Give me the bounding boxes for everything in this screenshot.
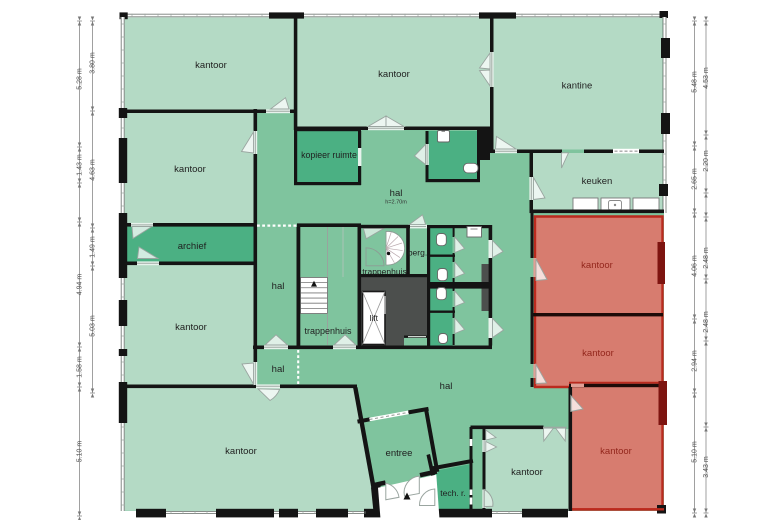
svg-text:kantoor: kantoor (225, 446, 257, 457)
svg-text:hal: hal (390, 188, 403, 199)
svg-text:kantoor: kantoor (581, 260, 613, 271)
svg-text:2.20 m: 2.20 m (703, 150, 710, 172)
svg-text:2.48 m: 2.48 m (703, 311, 710, 333)
svg-text:kantoor: kantoor (378, 69, 410, 80)
svg-text:1.43 m: 1.43 m (77, 154, 84, 176)
svg-text:berg.: berg. (408, 248, 427, 258)
svg-text:5.48 m: 5.48 m (692, 71, 699, 93)
svg-text:archief: archief (178, 241, 207, 252)
svg-text:trappenhuis: trappenhuis (304, 326, 352, 336)
svg-text:kantoor: kantoor (582, 348, 614, 359)
svg-text:5.28 m: 5.28 m (77, 68, 84, 90)
svg-text:5.10 m: 5.10 m (692, 441, 699, 463)
svg-text:4.94 m: 4.94 m (77, 274, 84, 296)
svg-text:kantoor: kantoor (174, 164, 206, 175)
svg-text:kantoor: kantoor (195, 60, 227, 71)
svg-text:hal: hal (440, 381, 453, 392)
svg-text:4.53 m: 4.53 m (703, 67, 710, 89)
svg-text:hal: hal (272, 364, 285, 375)
svg-text:2.48 m: 2.48 m (703, 247, 710, 269)
svg-text:kopieer ruimte: kopieer ruimte (301, 150, 357, 160)
svg-text:5.10 m: 5.10 m (77, 441, 84, 463)
svg-text:trappenhuis: trappenhuis (362, 267, 406, 277)
svg-text:2.65 m: 2.65 m (692, 168, 699, 190)
svg-text:h=2.70m: h=2.70m (385, 200, 407, 206)
svg-text:kantoor: kantoor (600, 446, 632, 457)
svg-text:5.03 m: 5.03 m (90, 315, 97, 337)
svg-text:tech. r.: tech. r. (440, 488, 466, 498)
svg-text:kantine: kantine (562, 81, 593, 92)
svg-text:1.49 m: 1.49 m (90, 236, 97, 258)
svg-text:3.80 m: 3.80 m (90, 52, 97, 74)
svg-text:1.58 m: 1.58 m (77, 356, 84, 378)
svg-text:3.43 m: 3.43 m (703, 456, 710, 478)
svg-text:kantoor: kantoor (175, 322, 207, 333)
svg-text:hal: hal (272, 281, 285, 292)
svg-text:keuken: keuken (582, 176, 613, 187)
svg-text:entree: entree (386, 448, 413, 459)
svg-text:lift: lift (369, 313, 378, 323)
svg-text:4.63 m: 4.63 m (90, 159, 97, 181)
svg-text:kantoor: kantoor (511, 467, 543, 478)
svg-text:2.94 m: 2.94 m (692, 350, 699, 372)
svg-text:4.06 m: 4.06 m (692, 255, 699, 277)
